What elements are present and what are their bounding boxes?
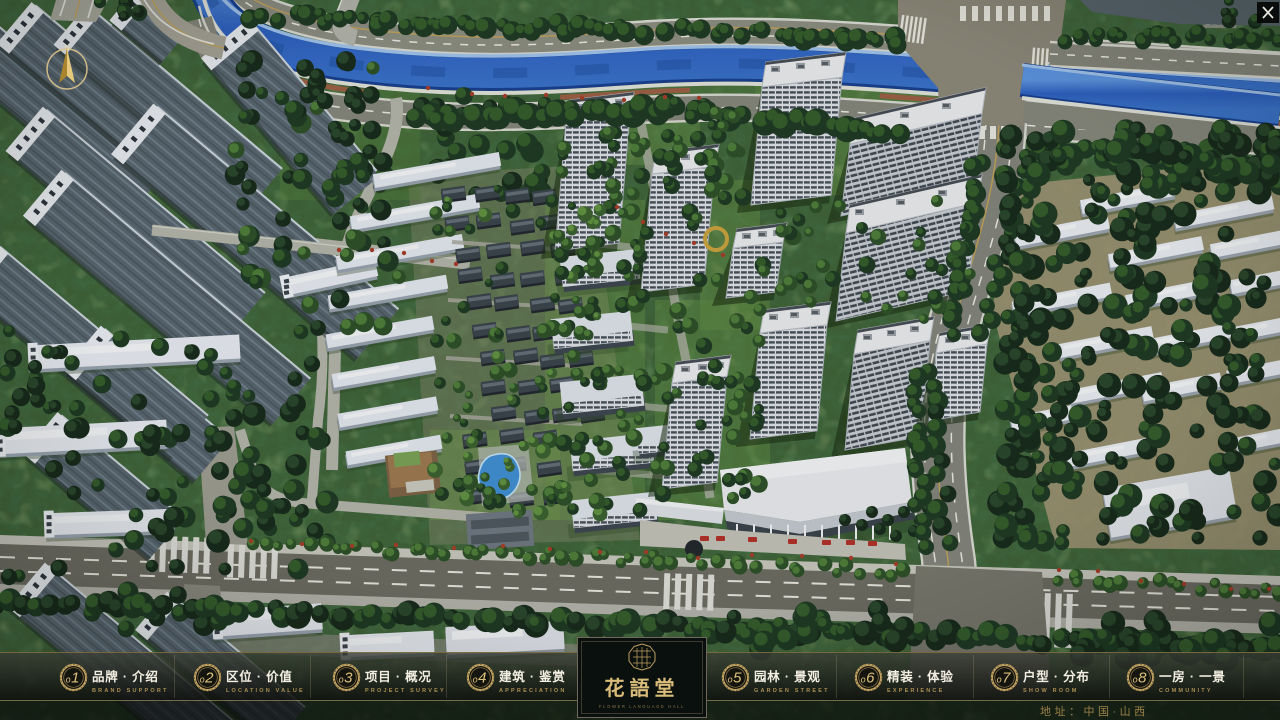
svg-text:花語堂: 花語堂 — [605, 676, 680, 700]
svg-text:FLOWER LANGUAGE HALL: FLOWER LANGUAGE HALL — [599, 704, 685, 709]
